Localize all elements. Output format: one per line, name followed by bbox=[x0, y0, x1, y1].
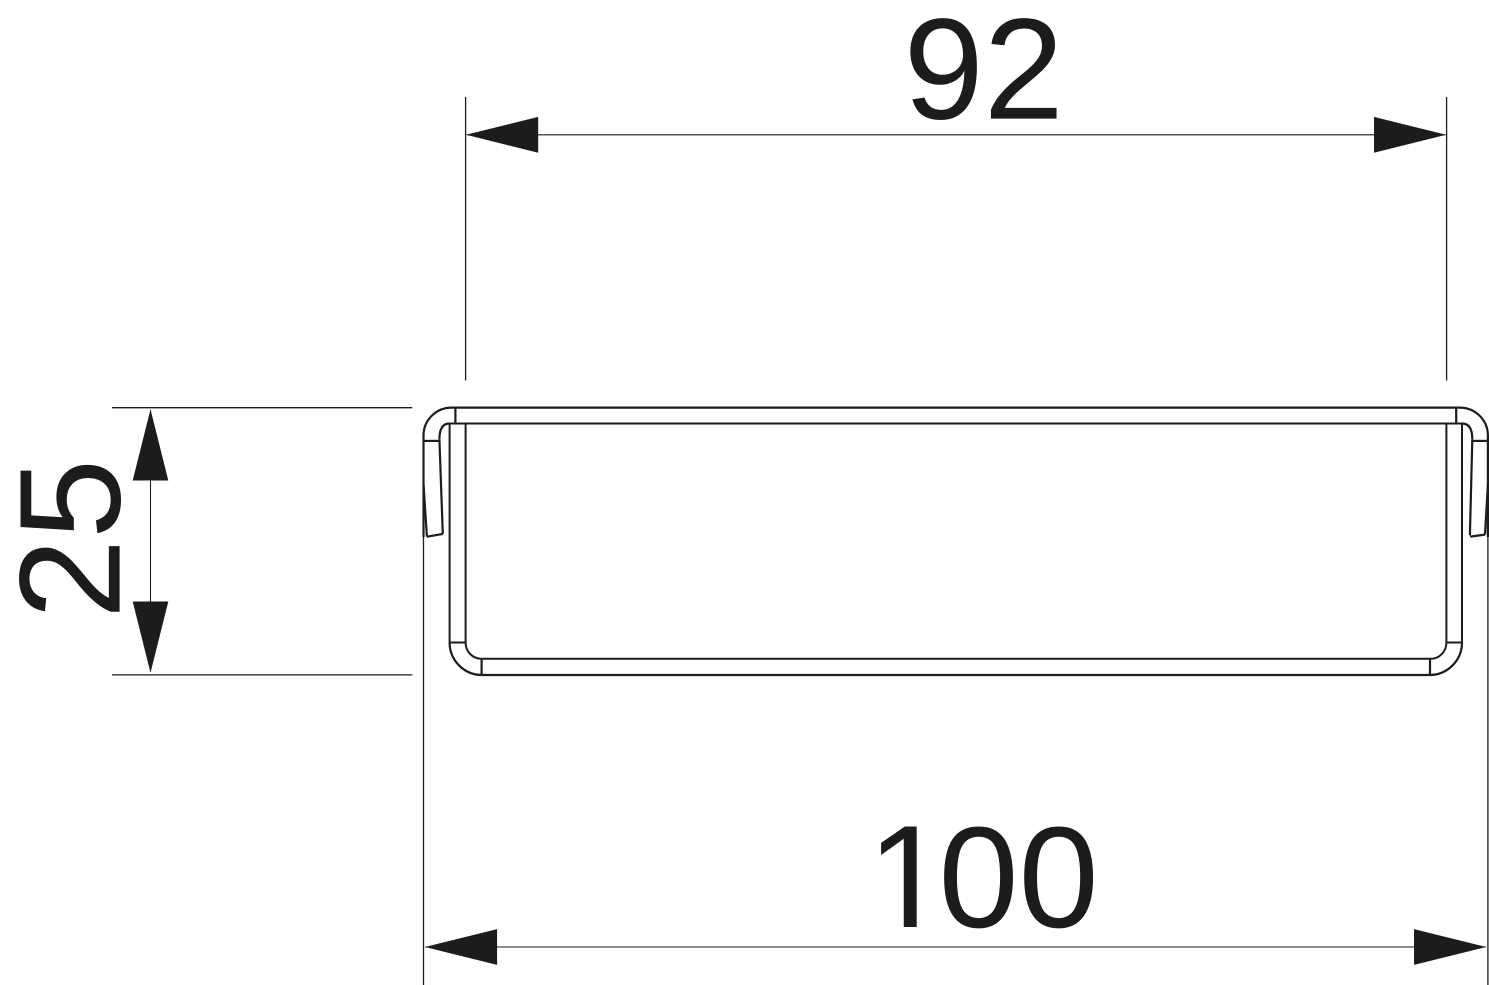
svg-text:00: 00 bbox=[939, 797, 1099, 958]
svg-text:92: 92 bbox=[904, 0, 1064, 150]
svg-text:25: 25 bbox=[0, 459, 151, 619]
